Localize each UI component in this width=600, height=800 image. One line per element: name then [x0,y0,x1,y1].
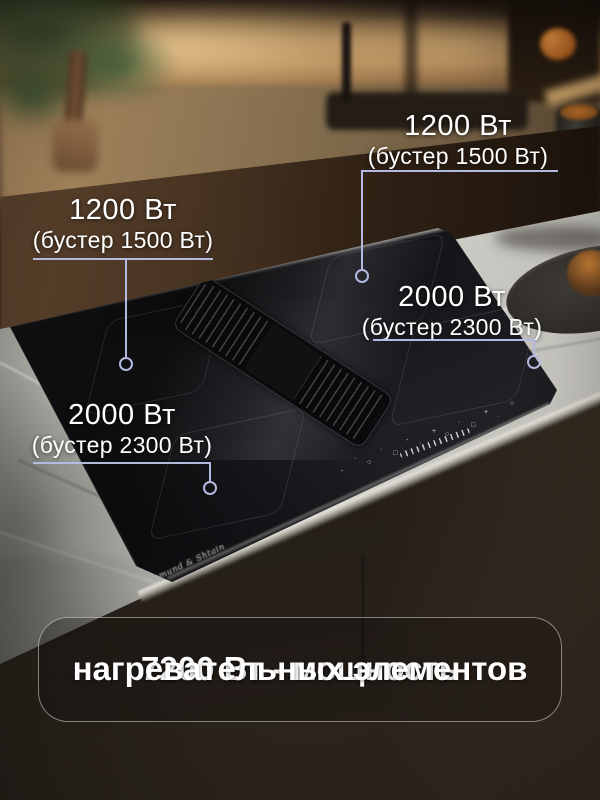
booster-label: (бустер 2300 Вт) [337,314,567,340]
power-label: 2000 Вт [7,401,237,430]
callout-ring [119,357,133,371]
callout-line [373,339,535,341]
callout-line [125,258,127,359]
callout-line [33,462,211,464]
callout-line [361,170,363,271]
promo-image-canvas: -·○·□-·+○·□+·○ Zigmund & Shtain 1200 Вт … [0,0,600,800]
callout-front-left: 2000 Вт (бустер 2300 Вт) [7,401,237,458]
callout-line [361,170,558,172]
callout-ring [203,481,217,495]
callout-back-left: 1200 Вт (бустер 1500 Вт) [8,196,238,253]
callout-line [209,462,211,483]
callout-right: 2000 Вт (бустер 2300 Вт) [337,283,567,340]
power-label: 1200 Вт [343,112,573,141]
booster-label: (бустер 1500 Вт) [343,143,573,169]
callout-line [33,258,213,260]
callout-ring [527,355,541,369]
power-label: 2000 Вт [337,283,567,312]
booster-label: (бустер 1500 Вт) [8,227,238,253]
callout-back-right: 1200 Вт (бустер 1500 Вт) [343,112,573,169]
power-label: 1200 Вт [8,196,238,225]
callout-ring [355,269,369,283]
total-power-line2: нагревательных элементов [73,649,528,689]
total-power-panel: 7200 Вт - мощность нагревательных элемен… [38,617,562,722]
booster-label: (бустер 2300 Вт) [7,432,237,458]
